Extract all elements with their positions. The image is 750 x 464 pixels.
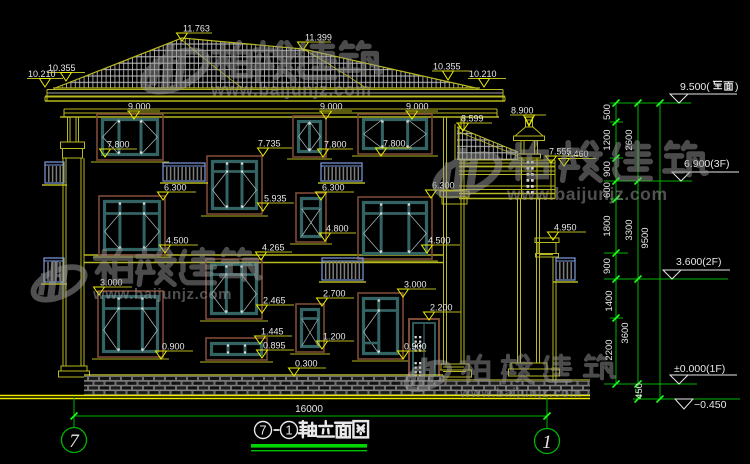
svg-text:5.935: 5.935 (264, 194, 287, 204)
svg-text:4.950: 4.950 (554, 223, 577, 233)
svg-text:4.265: 4.265 (262, 243, 285, 253)
svg-text:10.210: 10.210 (469, 69, 497, 79)
svg-text:9.000: 9.000 (320, 102, 343, 112)
svg-text:9.000: 9.000 (128, 102, 151, 112)
svg-text:6.300: 6.300 (322, 183, 345, 193)
svg-text:www.baijunjz.com: www.baijunjz.com (506, 184, 668, 204)
svg-text:www.baijunjz.com: www.baijunjz.com (92, 286, 232, 303)
svg-text:7.800: 7.800 (107, 140, 130, 150)
svg-text:1.445: 1.445 (261, 327, 284, 337)
svg-text:9.000: 9.000 (406, 102, 429, 112)
svg-text:3.600(2F): 3.600(2F) (676, 256, 722, 268)
svg-text:900: 900 (602, 258, 613, 274)
svg-text:450: 450 (634, 383, 645, 399)
svg-text:www.baijunjz.com: www.baijunjz.com (459, 385, 582, 400)
svg-text:11.399: 11.399 (305, 33, 332, 43)
svg-text:1200: 1200 (602, 129, 613, 150)
svg-text:): ) (735, 81, 739, 93)
svg-text:1: 1 (542, 432, 552, 453)
svg-text:11.763: 11.763 (183, 24, 210, 34)
svg-text:6.300: 6.300 (164, 183, 187, 193)
svg-text:1: 1 (285, 423, 292, 438)
svg-text:1.200: 1.200 (323, 332, 346, 342)
svg-text:4.500: 4.500 (428, 236, 451, 246)
svg-text:2.700: 2.700 (323, 289, 346, 299)
svg-text:−0.450: −0.450 (694, 399, 727, 411)
svg-text:3300: 3300 (624, 219, 635, 240)
svg-text:8.900: 8.900 (511, 106, 534, 116)
svg-text:9500: 9500 (640, 227, 651, 248)
svg-text:10.355: 10.355 (433, 62, 461, 72)
svg-text:0.895: 0.895 (263, 341, 286, 351)
svg-text:3.000: 3.000 (404, 280, 427, 290)
svg-text:4.800: 4.800 (326, 224, 349, 234)
svg-text:1800: 1800 (602, 215, 613, 236)
svg-text:0.900: 0.900 (404, 342, 427, 352)
svg-text:8.599: 8.599 (461, 114, 484, 124)
svg-text:4.500: 4.500 (166, 236, 189, 246)
svg-text:500: 500 (602, 104, 613, 120)
svg-text:7: 7 (69, 431, 80, 452)
svg-text:1400: 1400 (604, 290, 615, 311)
svg-text:7.735: 7.735 (258, 139, 281, 149)
svg-text:9.500(: 9.500( (680, 81, 710, 93)
svg-text:2.465: 2.465 (263, 296, 286, 306)
svg-text:0.300: 0.300 (295, 359, 318, 369)
svg-text:16000: 16000 (295, 404, 323, 415)
svg-text:2.200: 2.200 (430, 303, 453, 313)
svg-text:10.210: 10.210 (28, 69, 56, 79)
svg-text:±0.000(1F): ±0.000(1F) (674, 363, 725, 375)
svg-text:www.baijunjz.com: www.baijunjz.com (210, 80, 372, 100)
svg-text:7.800: 7.800 (383, 139, 406, 149)
svg-text:7: 7 (259, 423, 266, 438)
svg-text:900: 900 (602, 161, 613, 177)
svg-text:0.900: 0.900 (162, 342, 185, 352)
svg-text:3600: 3600 (620, 322, 631, 343)
svg-text:7.800: 7.800 (324, 140, 347, 150)
